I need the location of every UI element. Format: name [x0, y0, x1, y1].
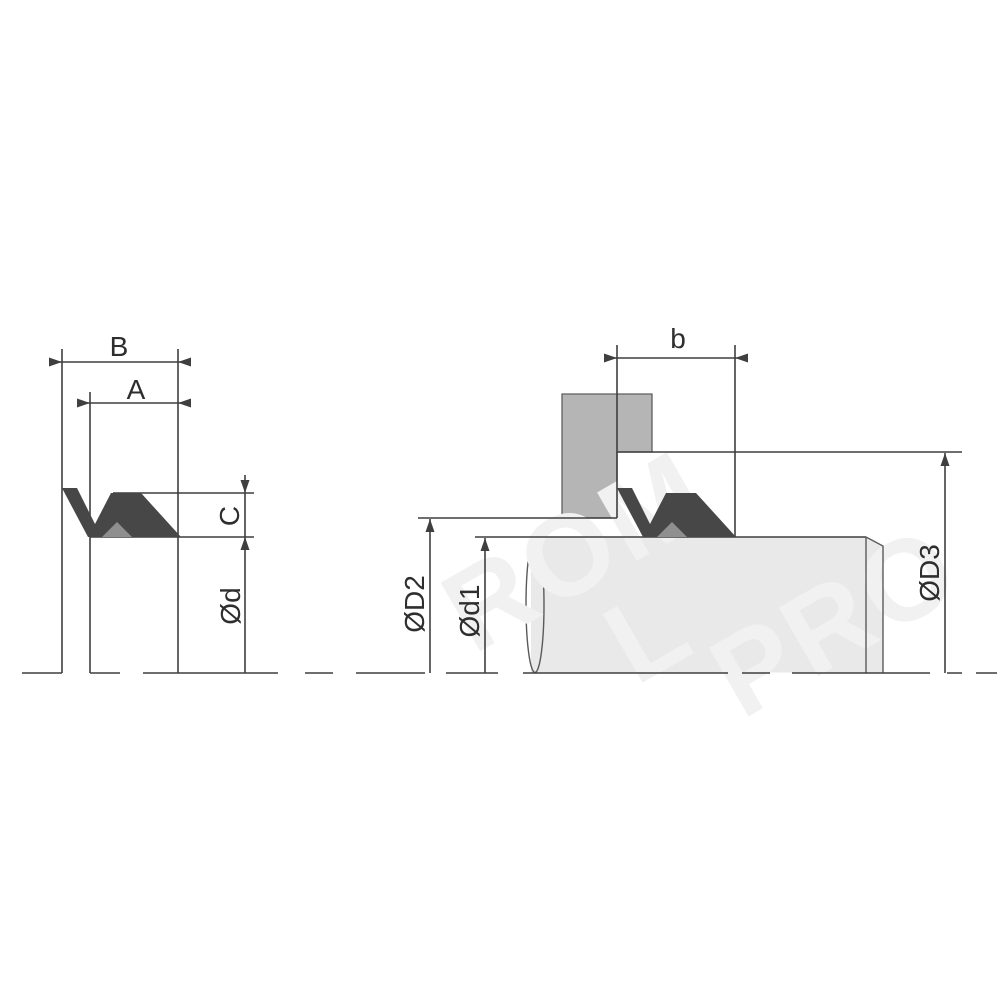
seal-diagram-canvas: ROM L PRO	[0, 0, 1000, 1000]
dim-label-inner-width: A	[127, 374, 146, 405]
dim-label-height: C	[214, 506, 245, 526]
arrowhead-groove-left	[604, 354, 617, 363]
arrowhead-c-top	[241, 480, 250, 493]
arrowhead-groove-right	[735, 354, 748, 363]
arrowhead-b-right	[178, 358, 191, 367]
arrowhead-housing-bore	[426, 519, 435, 532]
arrowhead-a-right	[178, 399, 191, 408]
arrowhead-c-bottom	[241, 537, 250, 550]
technical-drawing-page: ROM L PRO	[0, 0, 1000, 1000]
dim-label-shoulder-diameter: ØD3	[914, 544, 945, 602]
dim-label-outer-width: B	[110, 331, 129, 362]
left-view-cross-section	[22, 349, 333, 673]
arrowhead-shoulder-diameter	[941, 453, 950, 466]
dim-label-shaft-diameter: Ød1	[454, 585, 485, 638]
dim-label-groove-width: b	[670, 323, 686, 354]
dim-label-inner-diameter: Ød	[215, 587, 246, 624]
arrowhead-b-left	[49, 358, 62, 367]
arrowhead-a-left	[77, 399, 90, 408]
dim-label-housing-bore: ØD2	[399, 575, 430, 633]
